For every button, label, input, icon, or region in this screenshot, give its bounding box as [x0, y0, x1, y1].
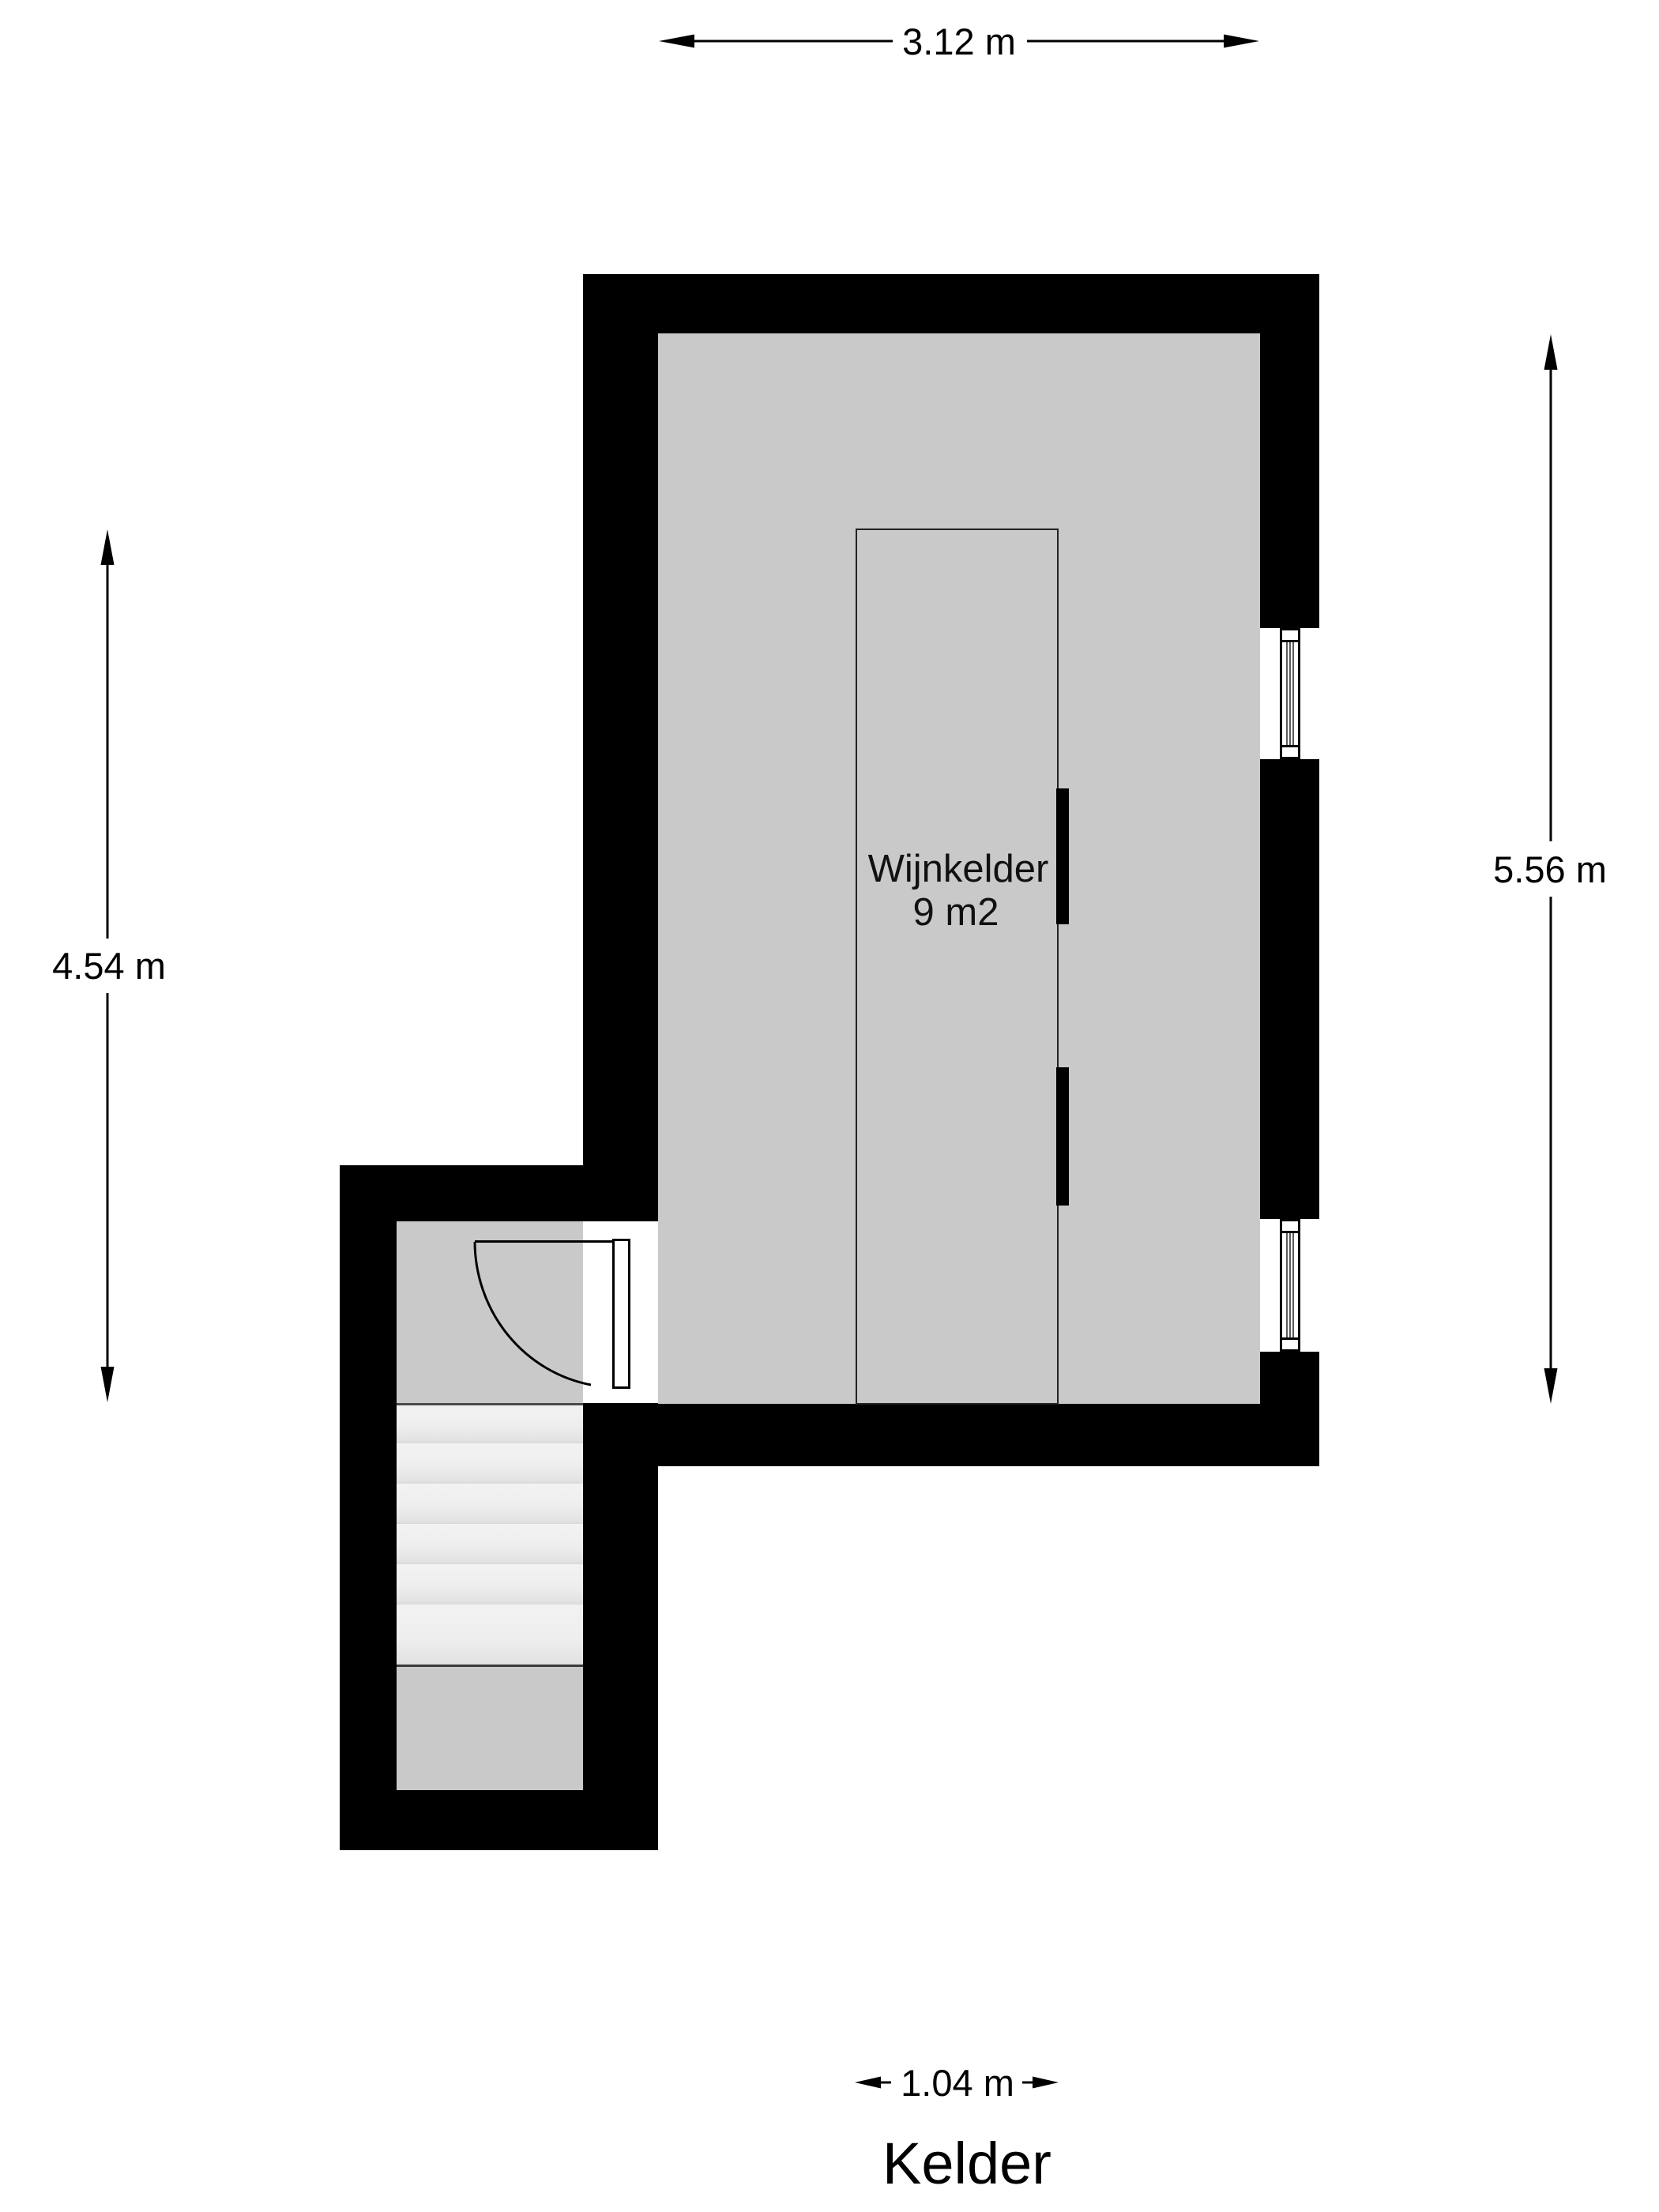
- svg-text:1.04 m: 1.04 m: [901, 2062, 1014, 2104]
- svg-text:9 m2: 9 m2: [913, 891, 999, 934]
- svg-text:5.56 m: 5.56 m: [1493, 848, 1607, 890]
- svg-text:3.12 m: 3.12 m: [902, 21, 1016, 62]
- svg-text:Kelder: Kelder: [882, 2131, 1051, 2196]
- svg-text:4.54 m: 4.54 m: [52, 945, 166, 987]
- svg-text:Wijnkelder: Wijnkelder: [868, 848, 1049, 890]
